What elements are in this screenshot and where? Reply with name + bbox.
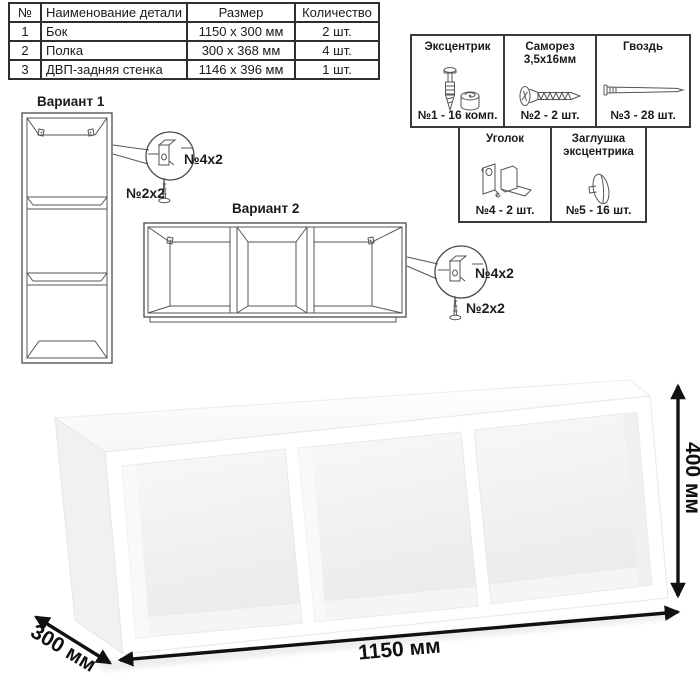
hardware-title: Гвоздь bbox=[620, 41, 666, 54]
part-name: Бок bbox=[41, 22, 187, 41]
variant1-callout: №4х2 №2х2 bbox=[113, 132, 223, 203]
parts-table: № Наименование детали Размер Количество … bbox=[8, 2, 380, 80]
hardware-title: Уголок bbox=[483, 133, 527, 146]
hardware-cell-screw: Саморез 3,5х16мм №2 - 2 шт. bbox=[503, 34, 597, 128]
col-header-name: Наименование детали bbox=[41, 3, 187, 22]
dimension-height: 400 мм bbox=[678, 386, 700, 596]
hardware-subtitle: 3,5х16мм bbox=[524, 54, 576, 67]
part-size: 300 x 368 мм bbox=[187, 41, 295, 60]
part-name: ДВП-задняя стенка bbox=[41, 60, 187, 79]
hardware-count-label: №2 - 2 шт. bbox=[505, 108, 595, 122]
parts-table-header-row: № Наименование детали Размер Количество bbox=[9, 3, 379, 22]
variant2-callout: №4х2 №2х2 bbox=[407, 246, 514, 320]
corner-bracket-icon bbox=[159, 140, 175, 165]
table-row: 3 ДВП-задняя стенка 1146 x 396 мм 1 шт. bbox=[9, 60, 379, 79]
assembly-instruction-page: № Наименование детали Размер Количество … bbox=[0, 0, 700, 690]
variant1-cabinet bbox=[22, 113, 112, 363]
corner-bracket-icon bbox=[450, 256, 466, 281]
hardware-title: Заглушка эксцентрика bbox=[552, 133, 645, 158]
variant1-title: Вариант 1 bbox=[37, 94, 104, 109]
col-header-num: № bbox=[9, 3, 41, 22]
part-qty: 2 шт. bbox=[295, 22, 379, 41]
bracket-count-label: №4х2 bbox=[184, 151, 223, 167]
hardware-cell-cap: Заглушка эксцентрика №5 - 16 шт. bbox=[550, 126, 647, 223]
screw-icon bbox=[450, 296, 461, 320]
hardware-count-label: №5 - 16 шт. bbox=[552, 203, 645, 217]
col-header-qty: Количество bbox=[295, 3, 379, 22]
height-dimension-label: 400 мм bbox=[681, 442, 700, 514]
hardware-cell-cam: Эксцентрик №1 - 16 комп. bbox=[410, 34, 505, 128]
hardware-title: Эксцентрик bbox=[421, 41, 493, 54]
screw-count-label: №2х2 bbox=[126, 185, 165, 201]
hardware-cell-nail: Гвоздь №3 - 28 шт. bbox=[595, 34, 691, 128]
part-size: 1146 x 396 мм bbox=[187, 60, 295, 79]
hardware-title: Саморез bbox=[522, 41, 577, 54]
variant2-cabinet bbox=[144, 223, 406, 322]
part-num: 2 bbox=[9, 41, 41, 60]
variant2-drawing: №4х2 №2х2 bbox=[140, 200, 560, 340]
part-qty: 4 шт. bbox=[295, 41, 379, 60]
screw-count-label: №2х2 bbox=[466, 300, 505, 316]
shelf-render: 1150 мм 300 мм 400 мм bbox=[0, 360, 700, 690]
part-name: Полка bbox=[41, 41, 187, 60]
hardware-count-label: №3 - 28 шт. bbox=[597, 108, 689, 122]
part-num: 3 bbox=[9, 60, 41, 79]
bracket-count-label: №4х2 bbox=[475, 265, 514, 281]
hardware-box-row1: Эксцентрик №1 - 16 комп. bbox=[410, 34, 691, 128]
part-num: 1 bbox=[9, 22, 41, 41]
part-qty: 1 шт. bbox=[295, 60, 379, 79]
table-row: 1 Бок 1150 x 300 мм 2 шт. bbox=[9, 22, 379, 41]
col-header-size: Размер bbox=[187, 3, 295, 22]
part-size: 1150 x 300 мм bbox=[187, 22, 295, 41]
table-row: 2 Полка 300 x 368 мм 4 шт. bbox=[9, 41, 379, 60]
hardware-count-label: №1 - 16 комп. bbox=[412, 108, 503, 122]
shelf-unit bbox=[55, 380, 674, 671]
